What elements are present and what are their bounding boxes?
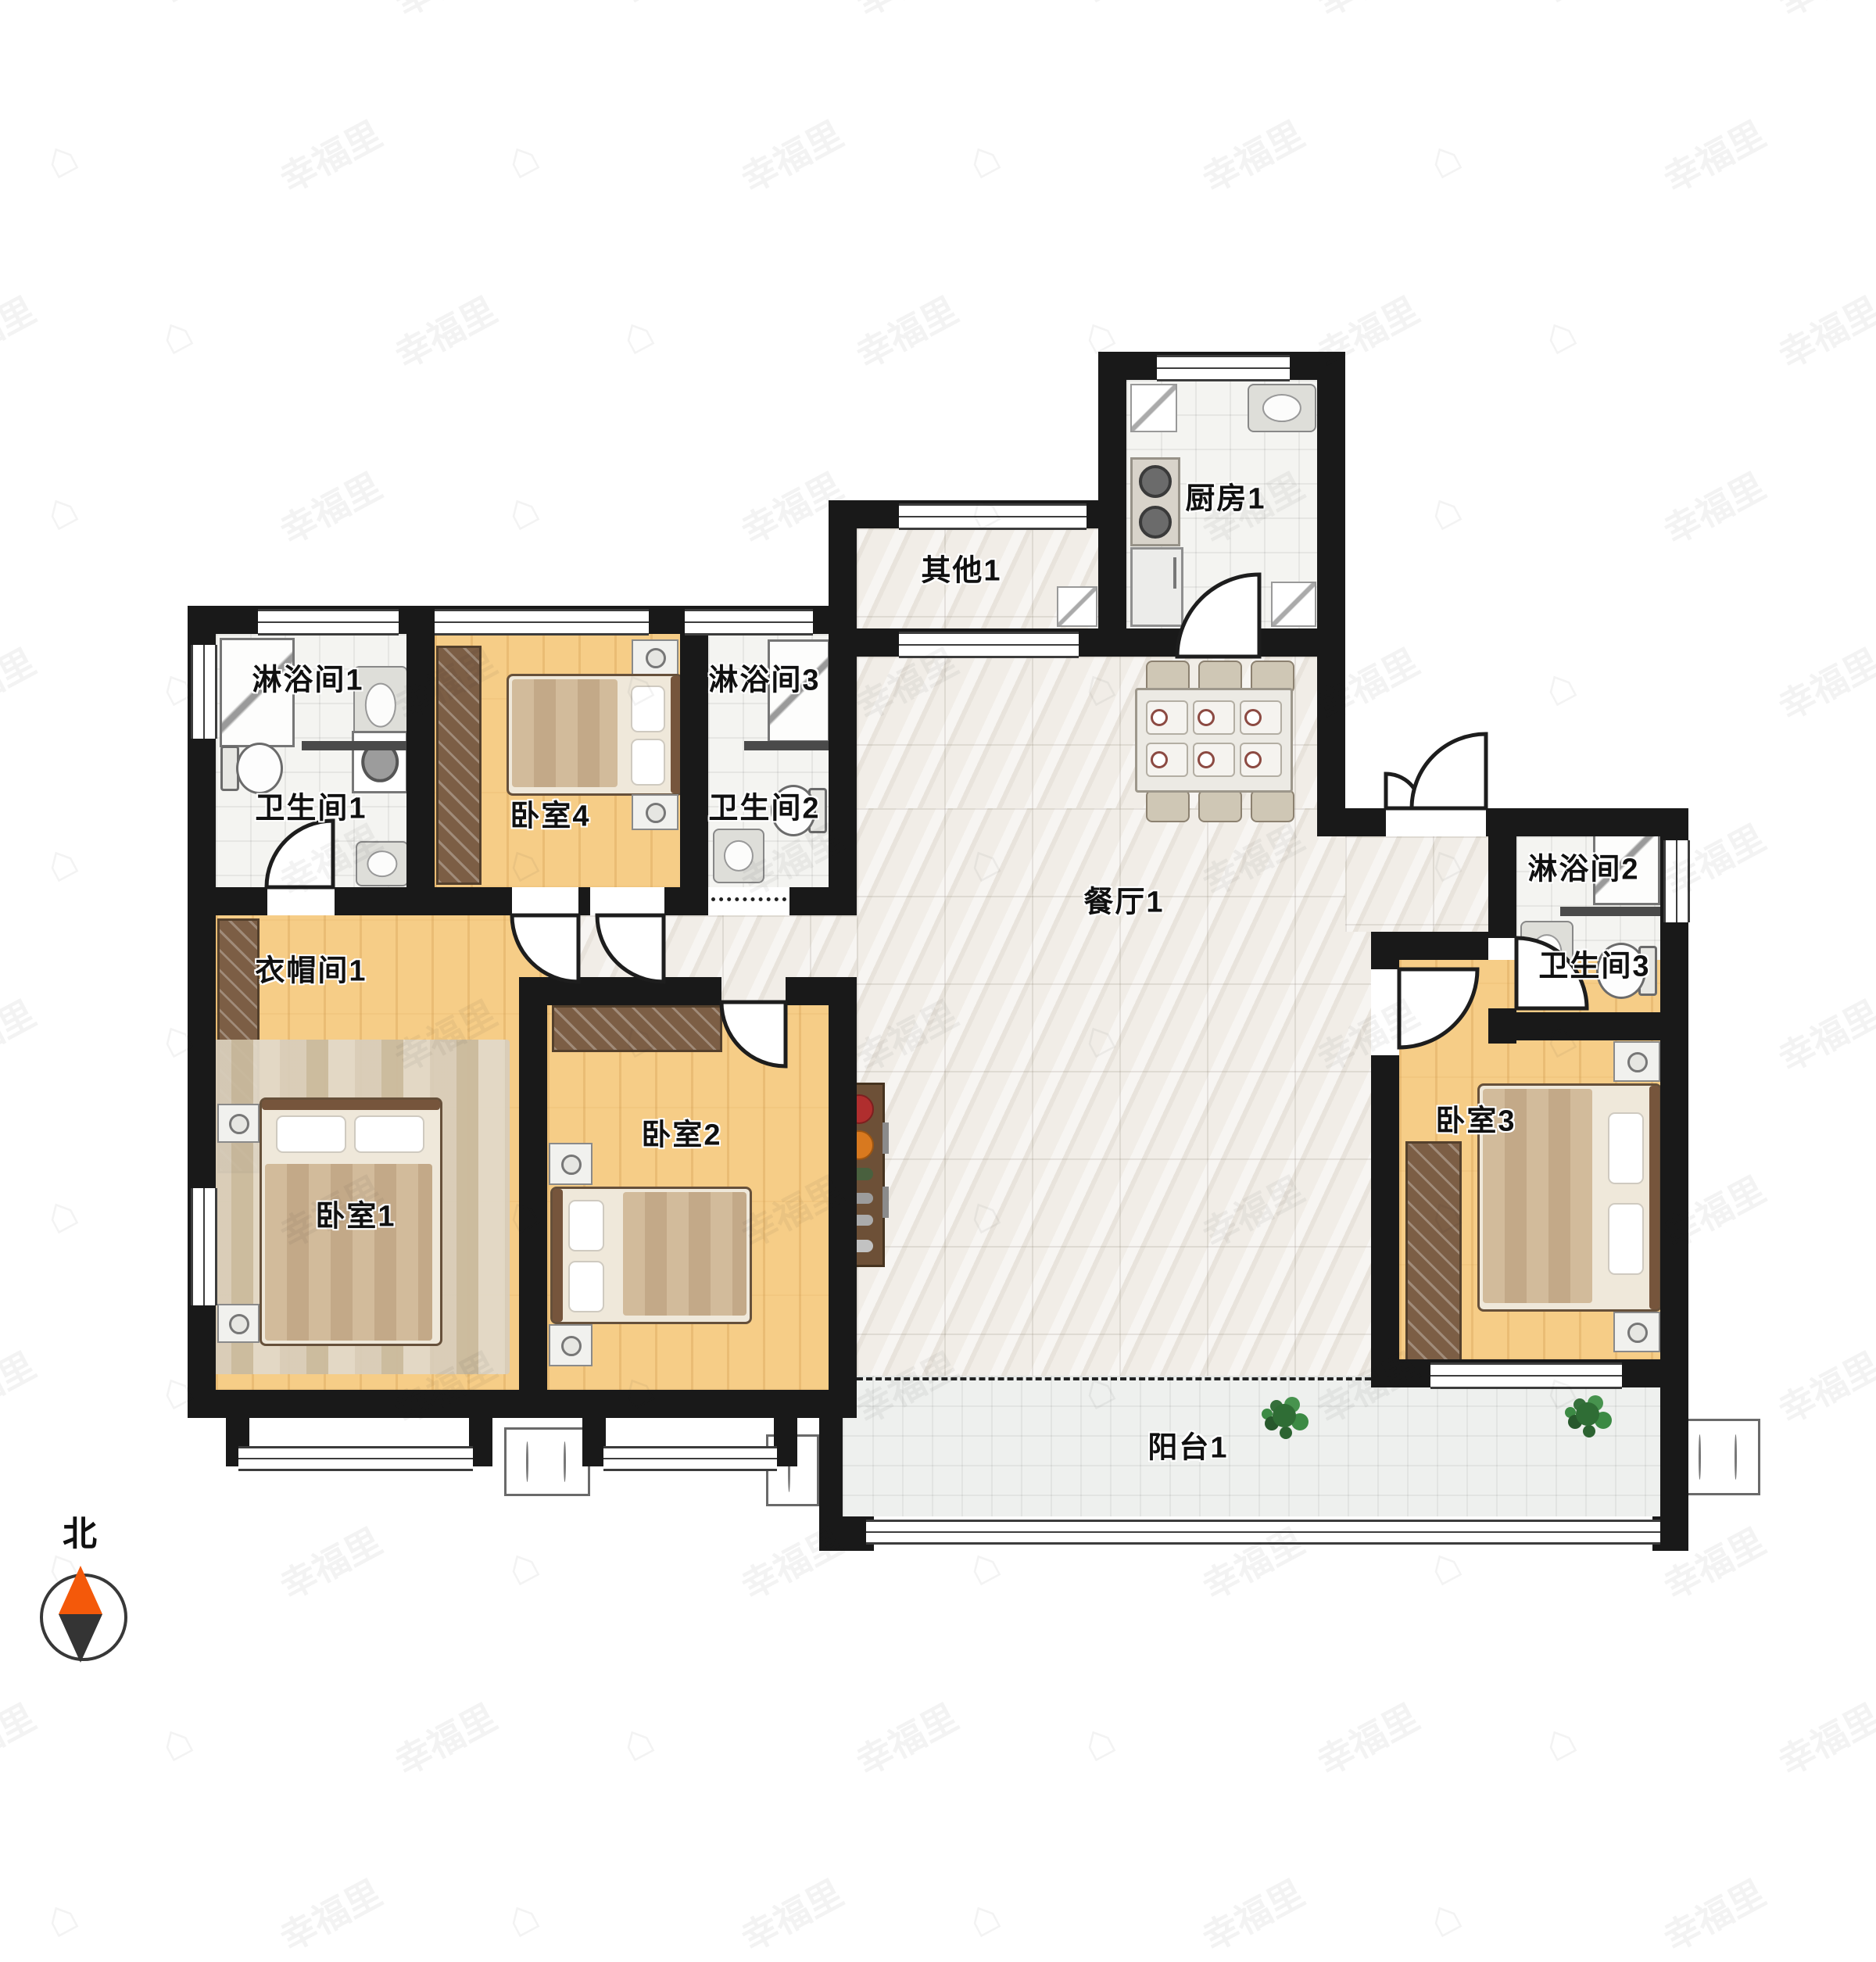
- wall-segment: [188, 1390, 857, 1418]
- stove-icon: [1130, 457, 1180, 546]
- room-label-shower-2: 淋浴间2: [1527, 845, 1639, 888]
- half-wall-divider: [744, 741, 829, 750]
- room-label-bedroom-4: 卧室4: [510, 792, 590, 835]
- wall-segment: [680, 634, 708, 887]
- wall-segment: [789, 887, 829, 915]
- wall-segment: [519, 977, 721, 1005]
- wall-segment: [829, 1002, 857, 1390]
- ac-unit-icon: [504, 1427, 590, 1496]
- watermark-tile: ⌂: [495, 1884, 549, 1949]
- compass-needle-north: [59, 1566, 102, 1614]
- plant-icon: [1273, 1404, 1296, 1427]
- wall-segment: [1317, 352, 1345, 836]
- nightstand-icon: [217, 1104, 260, 1143]
- window: [685, 609, 813, 636]
- floor-plan-canvas: 淋浴间1 卫生间1 卧室4 淋浴间3 卫生间2 其他1 厨房1 餐厅1 衣帽间1…: [0, 0, 1876, 1876]
- bed-icon: [550, 1187, 752, 1324]
- wall-segment: [1098, 352, 1126, 657]
- bed-icon: [507, 674, 683, 796]
- open-boundary-dotted: [711, 897, 786, 901]
- watermark-tile: 幸福里: [1654, 1865, 1774, 1961]
- window: [435, 609, 649, 636]
- place-setting-icon: [1240, 743, 1282, 777]
- nightstand-icon: [632, 639, 678, 675]
- wall-segment: [519, 977, 547, 1390]
- floor-balcony: [843, 1376, 1660, 1516]
- wall-segment: [1371, 932, 1399, 969]
- window: [899, 503, 1087, 530]
- wall-pier: [582, 1418, 606, 1466]
- watermark-tile: 幸福里: [1193, 1865, 1312, 1961]
- wall-segment: [1345, 808, 1386, 836]
- balcony-open-boundary: [857, 1377, 1371, 1380]
- fridge-icon: [1130, 547, 1183, 627]
- room-label-bedroom-1: 卧室1: [315, 1192, 396, 1235]
- sink-icon: [356, 841, 409, 886]
- ac-unit-icon: [1677, 1419, 1760, 1495]
- wall-segment: [335, 887, 512, 915]
- room-label-balcony-1: 阳台1: [1147, 1423, 1228, 1466]
- wall-segment: [1371, 1055, 1399, 1387]
- nightstand-icon: [1613, 1041, 1660, 1082]
- half-wall-divider: [302, 741, 406, 750]
- place-setting-icon: [1146, 743, 1188, 777]
- wall-segment: [1259, 628, 1345, 657]
- chair-icon: [1251, 789, 1294, 822]
- wall-pier: [774, 1418, 797, 1466]
- room-label-kitchen-1: 厨房1: [1185, 474, 1266, 517]
- kitchen-counter-icon: [1130, 384, 1177, 432]
- nightstand-icon: [549, 1143, 593, 1185]
- room-label-bedroom-3: 卧室3: [1435, 1097, 1516, 1140]
- room-label-shower-1: 淋浴间1: [252, 656, 363, 699]
- wardrobe-icon: [1405, 1141, 1462, 1365]
- wall-segment: [406, 634, 435, 887]
- nightstand-icon: [1613, 1312, 1660, 1352]
- floor-dining-east: [1345, 836, 1488, 932]
- watermark-tile: ⌂: [34, 1884, 88, 1949]
- compass-north-label: 北: [63, 1506, 98, 1556]
- place-setting-icon: [1146, 700, 1188, 735]
- room-label-other-1: 其他1: [921, 546, 1001, 589]
- wall-segment: [829, 500, 857, 915]
- chair-icon: [1146, 789, 1190, 822]
- window: [1430, 1362, 1622, 1389]
- kitchen-sink-icon: [1248, 384, 1316, 432]
- compass-needle-south: [59, 1614, 102, 1663]
- bay-window: [238, 1446, 473, 1471]
- nightstand-icon: [217, 1304, 260, 1343]
- door-arc: [1386, 774, 1420, 808]
- bay-window: [603, 1446, 777, 1471]
- floor-plan-page: { "compass": {"label": "北"}, "watermark"…: [0, 0, 1876, 1876]
- place-setting-icon: [1193, 743, 1235, 777]
- wall-segment: [1488, 1012, 1660, 1040]
- room-label-toilet-1: 卫生间1: [255, 784, 367, 827]
- sink-icon: [713, 829, 764, 883]
- room-label-bedroom-2: 卧室2: [641, 1111, 721, 1154]
- kitchen-counter-icon: [1271, 582, 1316, 627]
- wall-segment: [578, 887, 590, 915]
- watermark-tile: ⌂: [956, 1884, 1010, 1949]
- wall-segment: [786, 977, 857, 1005]
- wall-segment: [188, 887, 267, 915]
- room-label-shower-3: 淋浴间3: [708, 656, 820, 699]
- chair-icon: [1198, 789, 1242, 822]
- room-label-cloakroom-1: 衣帽间1: [255, 947, 367, 990]
- room-label-toilet-3: 卫生间3: [1538, 942, 1650, 985]
- window: [258, 609, 399, 636]
- window: [1157, 355, 1290, 381]
- window: [191, 1188, 217, 1305]
- room-label-toilet-2: 卫生间2: [708, 784, 820, 827]
- place-setting-icon: [1193, 700, 1235, 735]
- watermark-tile: 幸福里: [732, 1865, 851, 1961]
- wardrobe-icon: [436, 646, 482, 885]
- nightstand-icon: [549, 1324, 593, 1366]
- window: [899, 632, 1079, 658]
- wardrobe-icon: [552, 1005, 722, 1052]
- plant-icon: [1576, 1402, 1599, 1426]
- place-setting-icon: [1240, 700, 1282, 735]
- door-arc: [1412, 734, 1486, 808]
- watermark-tile: ⌂: [1417, 1884, 1471, 1949]
- wall-segment: [819, 1418, 843, 1520]
- wall-segment: [664, 887, 708, 915]
- wall-segment: [1488, 808, 1516, 938]
- watermark-tile: 幸福里: [270, 1865, 390, 1961]
- window: [1663, 840, 1690, 922]
- cabinet-icon: [1057, 586, 1097, 627]
- balcony-railing-window: [866, 1520, 1660, 1545]
- window: [191, 645, 217, 739]
- half-wall-divider: [1560, 907, 1660, 916]
- nightstand-icon: [632, 794, 678, 830]
- room-label-dining-1: 餐厅1: [1083, 878, 1164, 921]
